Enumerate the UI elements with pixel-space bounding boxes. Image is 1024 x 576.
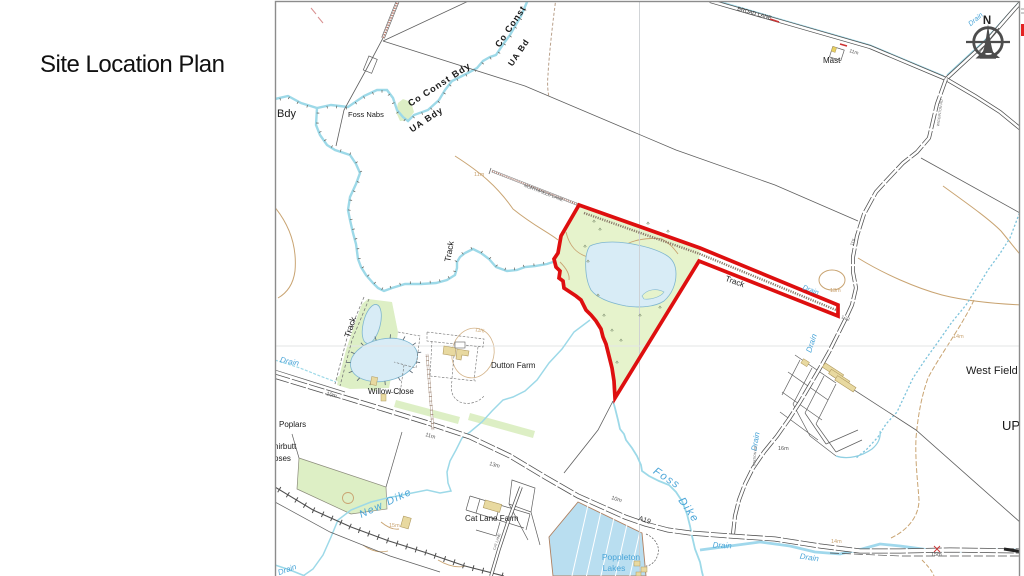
svg-text:14m: 14m (831, 539, 842, 545)
svg-text:Drain: Drain (279, 355, 300, 368)
svg-text:hirbutt: hirbutt (274, 442, 297, 451)
svg-text:Mast: Mast (823, 56, 841, 65)
svg-text:Dutton Farm: Dutton Farm (491, 361, 536, 370)
svg-text:11m: 11m (848, 48, 859, 56)
svg-text:oses: oses (274, 454, 291, 463)
svg-text:16m: 16m (778, 446, 789, 452)
svg-text:Cat Lane Farm: Cat Lane Farm (465, 514, 519, 523)
svg-text:Drain: Drain (277, 562, 299, 576)
svg-text:15m: 15m (931, 552, 942, 558)
svg-text:Track: Track (442, 240, 456, 263)
svg-text:Foss Nabs: Foss Nabs (348, 110, 384, 119)
svg-text:UA Bd: UA Bd (506, 37, 531, 68)
svg-text:Poppleton: Poppleton (602, 552, 641, 562)
svg-text:14m: 14m (953, 334, 964, 340)
svg-text:BROAD LANE: BROAD LANE (736, 6, 772, 22)
svg-text:10m: 10m (610, 495, 622, 504)
svg-text:Drain: Drain (799, 552, 820, 564)
svg-text:N: N (983, 15, 991, 27)
svg-text:Lakes: Lakes (603, 563, 626, 573)
svg-text:NORTHFIELD LANE: NORTHFIELD LANE (523, 183, 564, 203)
svg-text:Bdy: Bdy (277, 108, 296, 120)
svg-text:11/6: 11/6 (475, 327, 485, 335)
svg-text:13m: 13m (488, 461, 500, 470)
svg-text:Drain: Drain (712, 541, 732, 551)
svg-text:11m: 11m (474, 172, 485, 178)
svg-text:West Field: West Field (966, 365, 1018, 377)
svg-text:15m: 15m (389, 523, 400, 529)
svg-text:UA Bdy: UA Bdy (408, 105, 445, 135)
svg-text:Dike: Dike (676, 495, 702, 525)
svg-text:Willow Close: Willow Close (368, 387, 414, 396)
svg-text:UPP: UPP (1002, 418, 1024, 433)
svg-text:Track: Track (724, 274, 747, 290)
svg-text:Poplars: Poplars (279, 420, 306, 429)
svg-text:13m: 13m (830, 288, 841, 294)
svg-text:Drain: Drain (804, 332, 819, 353)
svg-text:11m: 11m (424, 432, 436, 441)
